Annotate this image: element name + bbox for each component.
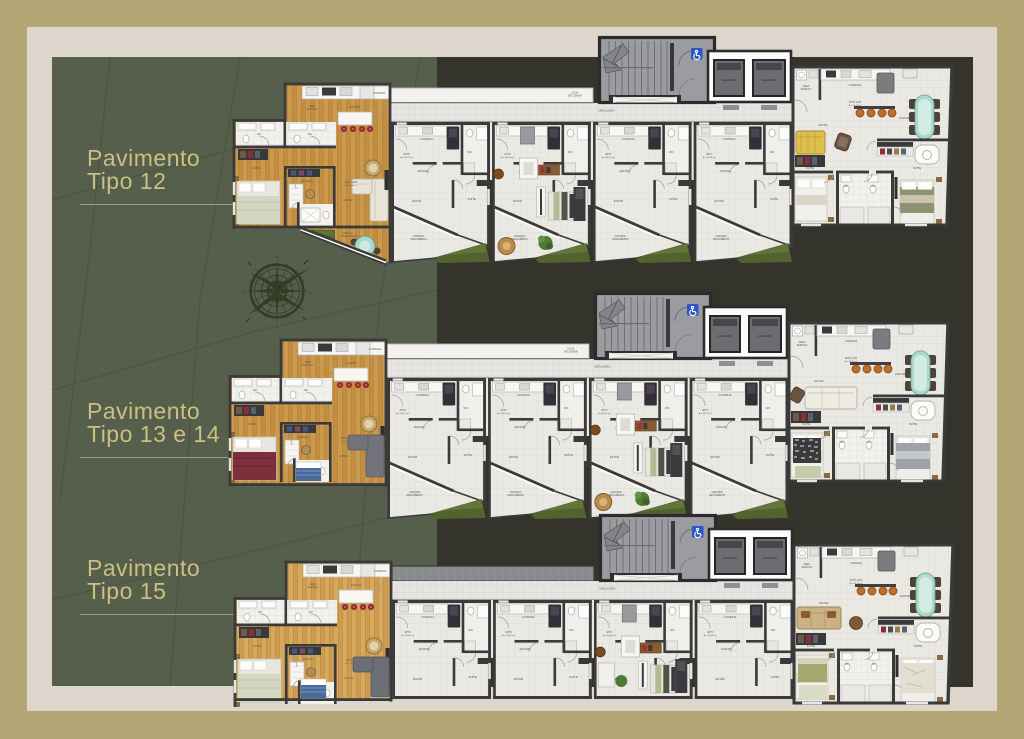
svg-text:Tipo 12: Tipo 12	[87, 168, 166, 194]
svg-text:LOCAL: LOCAL	[567, 348, 575, 351]
svg-text:S: S	[276, 324, 279, 329]
svg-text:CIRCULAÇÃO: CIRCULAÇÃO	[598, 110, 614, 113]
svg-text:Tipo 13 e 14: Tipo 13 e 14	[87, 421, 220, 447]
svg-text:LOCAL: LOCAL	[571, 92, 579, 95]
svg-text:Tipo 15: Tipo 15	[87, 578, 166, 604]
svg-text:N: N	[276, 255, 279, 260]
svg-text:BR. COMUM: BR. COMUM	[568, 96, 581, 98]
svg-text:O: O	[242, 289, 245, 294]
svg-text:CIRCULAÇÃO: CIRCULAÇÃO	[599, 588, 615, 591]
svg-text:BR. COMUM: BR. COMUM	[564, 352, 577, 354]
svg-text:CIRCULAÇÃO: CIRCULAÇÃO	[594, 366, 610, 369]
